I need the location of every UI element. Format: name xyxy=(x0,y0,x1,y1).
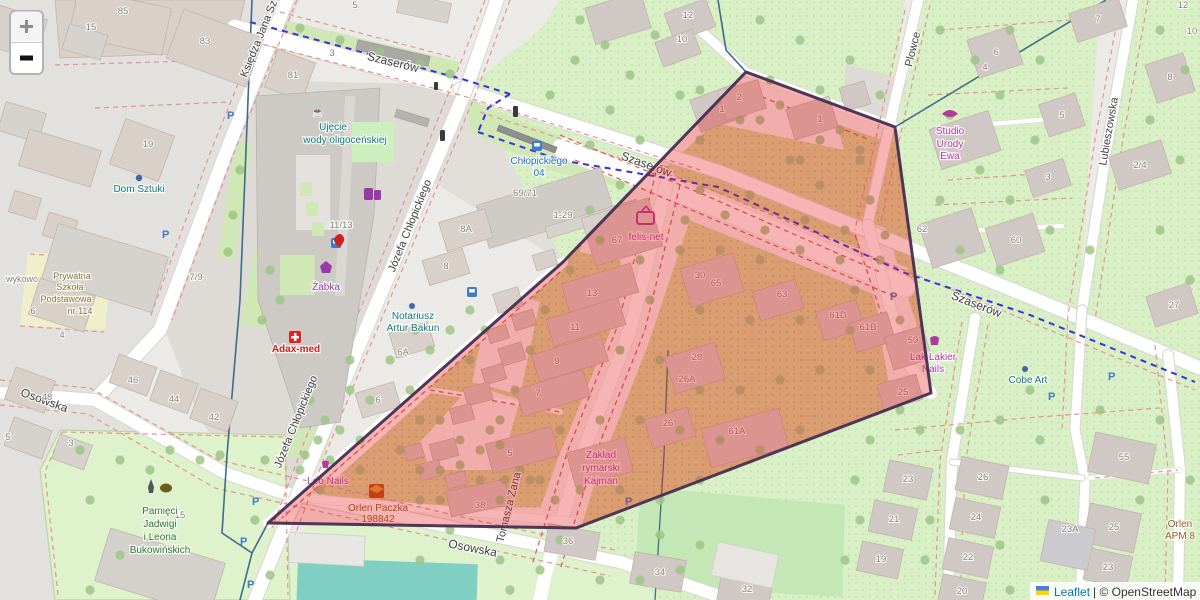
svg-text:4: 4 xyxy=(982,62,987,73)
svg-text:23: 23 xyxy=(1103,562,1114,573)
svg-text:11/13: 11/13 xyxy=(329,220,352,231)
svg-text:3: 3 xyxy=(1045,172,1050,183)
svg-text:8: 8 xyxy=(443,261,448,272)
svg-text:Szkoła: Szkoła xyxy=(56,282,83,292)
svg-text:P: P xyxy=(1108,371,1115,383)
svg-text:12: 12 xyxy=(683,10,694,21)
svg-text:Żabka: Żabka xyxy=(312,280,340,293)
svg-text:34: 34 xyxy=(655,567,666,578)
svg-text:6: 6 xyxy=(993,47,998,58)
svg-text:Chłopickiego: Chłopickiego xyxy=(510,156,568,167)
svg-text:8A: 8A xyxy=(460,224,472,235)
svg-text:42: 42 xyxy=(209,412,220,423)
svg-text:Cobe Art: Cobe Art xyxy=(1009,375,1048,386)
svg-text:1-29: 1-29 xyxy=(553,210,572,221)
svg-text:P: P xyxy=(240,536,247,548)
svg-text:8: 8 xyxy=(1167,72,1172,83)
svg-text:4: 4 xyxy=(59,330,64,341)
svg-text:83: 83 xyxy=(200,36,211,47)
svg-text:26: 26 xyxy=(978,472,989,483)
svg-text:| © OpenStreetMap: | © OpenStreetMap xyxy=(1093,585,1197,599)
svg-text:27: 27 xyxy=(1169,300,1180,311)
svg-text:19: 19 xyxy=(143,139,154,150)
svg-text:2/4: 2/4 xyxy=(1133,160,1146,171)
svg-text:5: 5 xyxy=(1059,110,1064,121)
svg-text:46: 46 xyxy=(128,375,139,386)
svg-text:wody oligoceńskiej: wody oligoceńskiej xyxy=(302,135,386,146)
svg-text:3: 3 xyxy=(68,438,73,449)
svg-text:☕: ☕ xyxy=(311,105,325,119)
svg-text:P: P xyxy=(162,229,169,241)
svg-text:P: P xyxy=(247,579,254,591)
svg-text:Prywatna: Prywatna xyxy=(53,271,91,281)
svg-text:Ewa: Ewa xyxy=(940,151,960,162)
svg-text:12: 12 xyxy=(1178,0,1189,11)
svg-text:20: 20 xyxy=(957,586,968,597)
svg-text:23: 23 xyxy=(903,474,914,485)
svg-text:wykowo: wykowo xyxy=(5,274,38,284)
svg-text:5: 5 xyxy=(5,432,10,443)
svg-text:19: 19 xyxy=(876,554,887,565)
svg-text:55: 55 xyxy=(1119,452,1130,463)
svg-text:69/71: 69/71 xyxy=(513,188,537,199)
svg-text:Pamięci: Pamięci xyxy=(142,506,178,517)
svg-text:Bukowińskich: Bukowińskich xyxy=(130,545,191,556)
svg-text:62: 62 xyxy=(917,224,928,235)
svg-text:P: P xyxy=(1048,391,1055,403)
svg-text:10: 10 xyxy=(1187,26,1198,37)
svg-text:22: 22 xyxy=(963,552,974,563)
svg-text:Jadwigi: Jadwigi xyxy=(143,519,176,530)
svg-text:nr 114: nr 114 xyxy=(68,306,93,316)
svg-text:24: 24 xyxy=(971,512,982,523)
svg-text:6A: 6A xyxy=(397,347,409,358)
svg-text:32: 32 xyxy=(742,584,753,595)
svg-text:P: P xyxy=(252,496,259,508)
svg-text:3: 3 xyxy=(329,48,334,59)
svg-text:i Leona: i Leona xyxy=(144,532,177,543)
svg-text:Urody: Urody xyxy=(937,139,964,150)
svg-text:Dom Sztuki: Dom Sztuki xyxy=(113,184,164,195)
svg-text:25: 25 xyxy=(1109,522,1120,533)
svg-text:Podstawowa: Podstawowa xyxy=(40,294,91,304)
svg-text:36: 36 xyxy=(563,536,574,547)
svg-text:10: 10 xyxy=(677,34,688,45)
svg-text:Artur Bakun: Artur Bakun xyxy=(387,323,440,334)
svg-text:Studio: Studio xyxy=(936,126,965,137)
svg-text:7/9: 7/9 xyxy=(189,272,202,283)
svg-text:APM 8: APM 8 xyxy=(1165,531,1195,542)
svg-text:85: 85 xyxy=(118,6,129,17)
svg-text:81: 81 xyxy=(288,70,299,81)
svg-text:6: 6 xyxy=(30,306,35,317)
svg-text:Adax-med: Adax-med xyxy=(272,344,320,355)
svg-text:Leaflet: Leaflet xyxy=(1054,585,1091,599)
svg-text:21: 21 xyxy=(889,514,900,525)
svg-text:6: 6 xyxy=(375,395,380,406)
svg-text:Ujęcie: Ujęcie xyxy=(319,122,347,133)
svg-text:7: 7 xyxy=(1095,14,1100,25)
svg-text:23A: 23A xyxy=(1062,524,1080,535)
svg-text:15: 15 xyxy=(86,22,97,33)
svg-text:48: 48 xyxy=(42,392,53,403)
svg-text:04: 04 xyxy=(533,168,545,179)
svg-text:5: 5 xyxy=(352,0,357,11)
svg-text:Orlen: Orlen xyxy=(1168,519,1192,530)
svg-text:60: 60 xyxy=(1011,235,1022,246)
svg-text:44: 44 xyxy=(169,394,180,405)
svg-text:Notariusz: Notariusz xyxy=(392,311,434,322)
svg-text:P: P xyxy=(227,110,234,122)
